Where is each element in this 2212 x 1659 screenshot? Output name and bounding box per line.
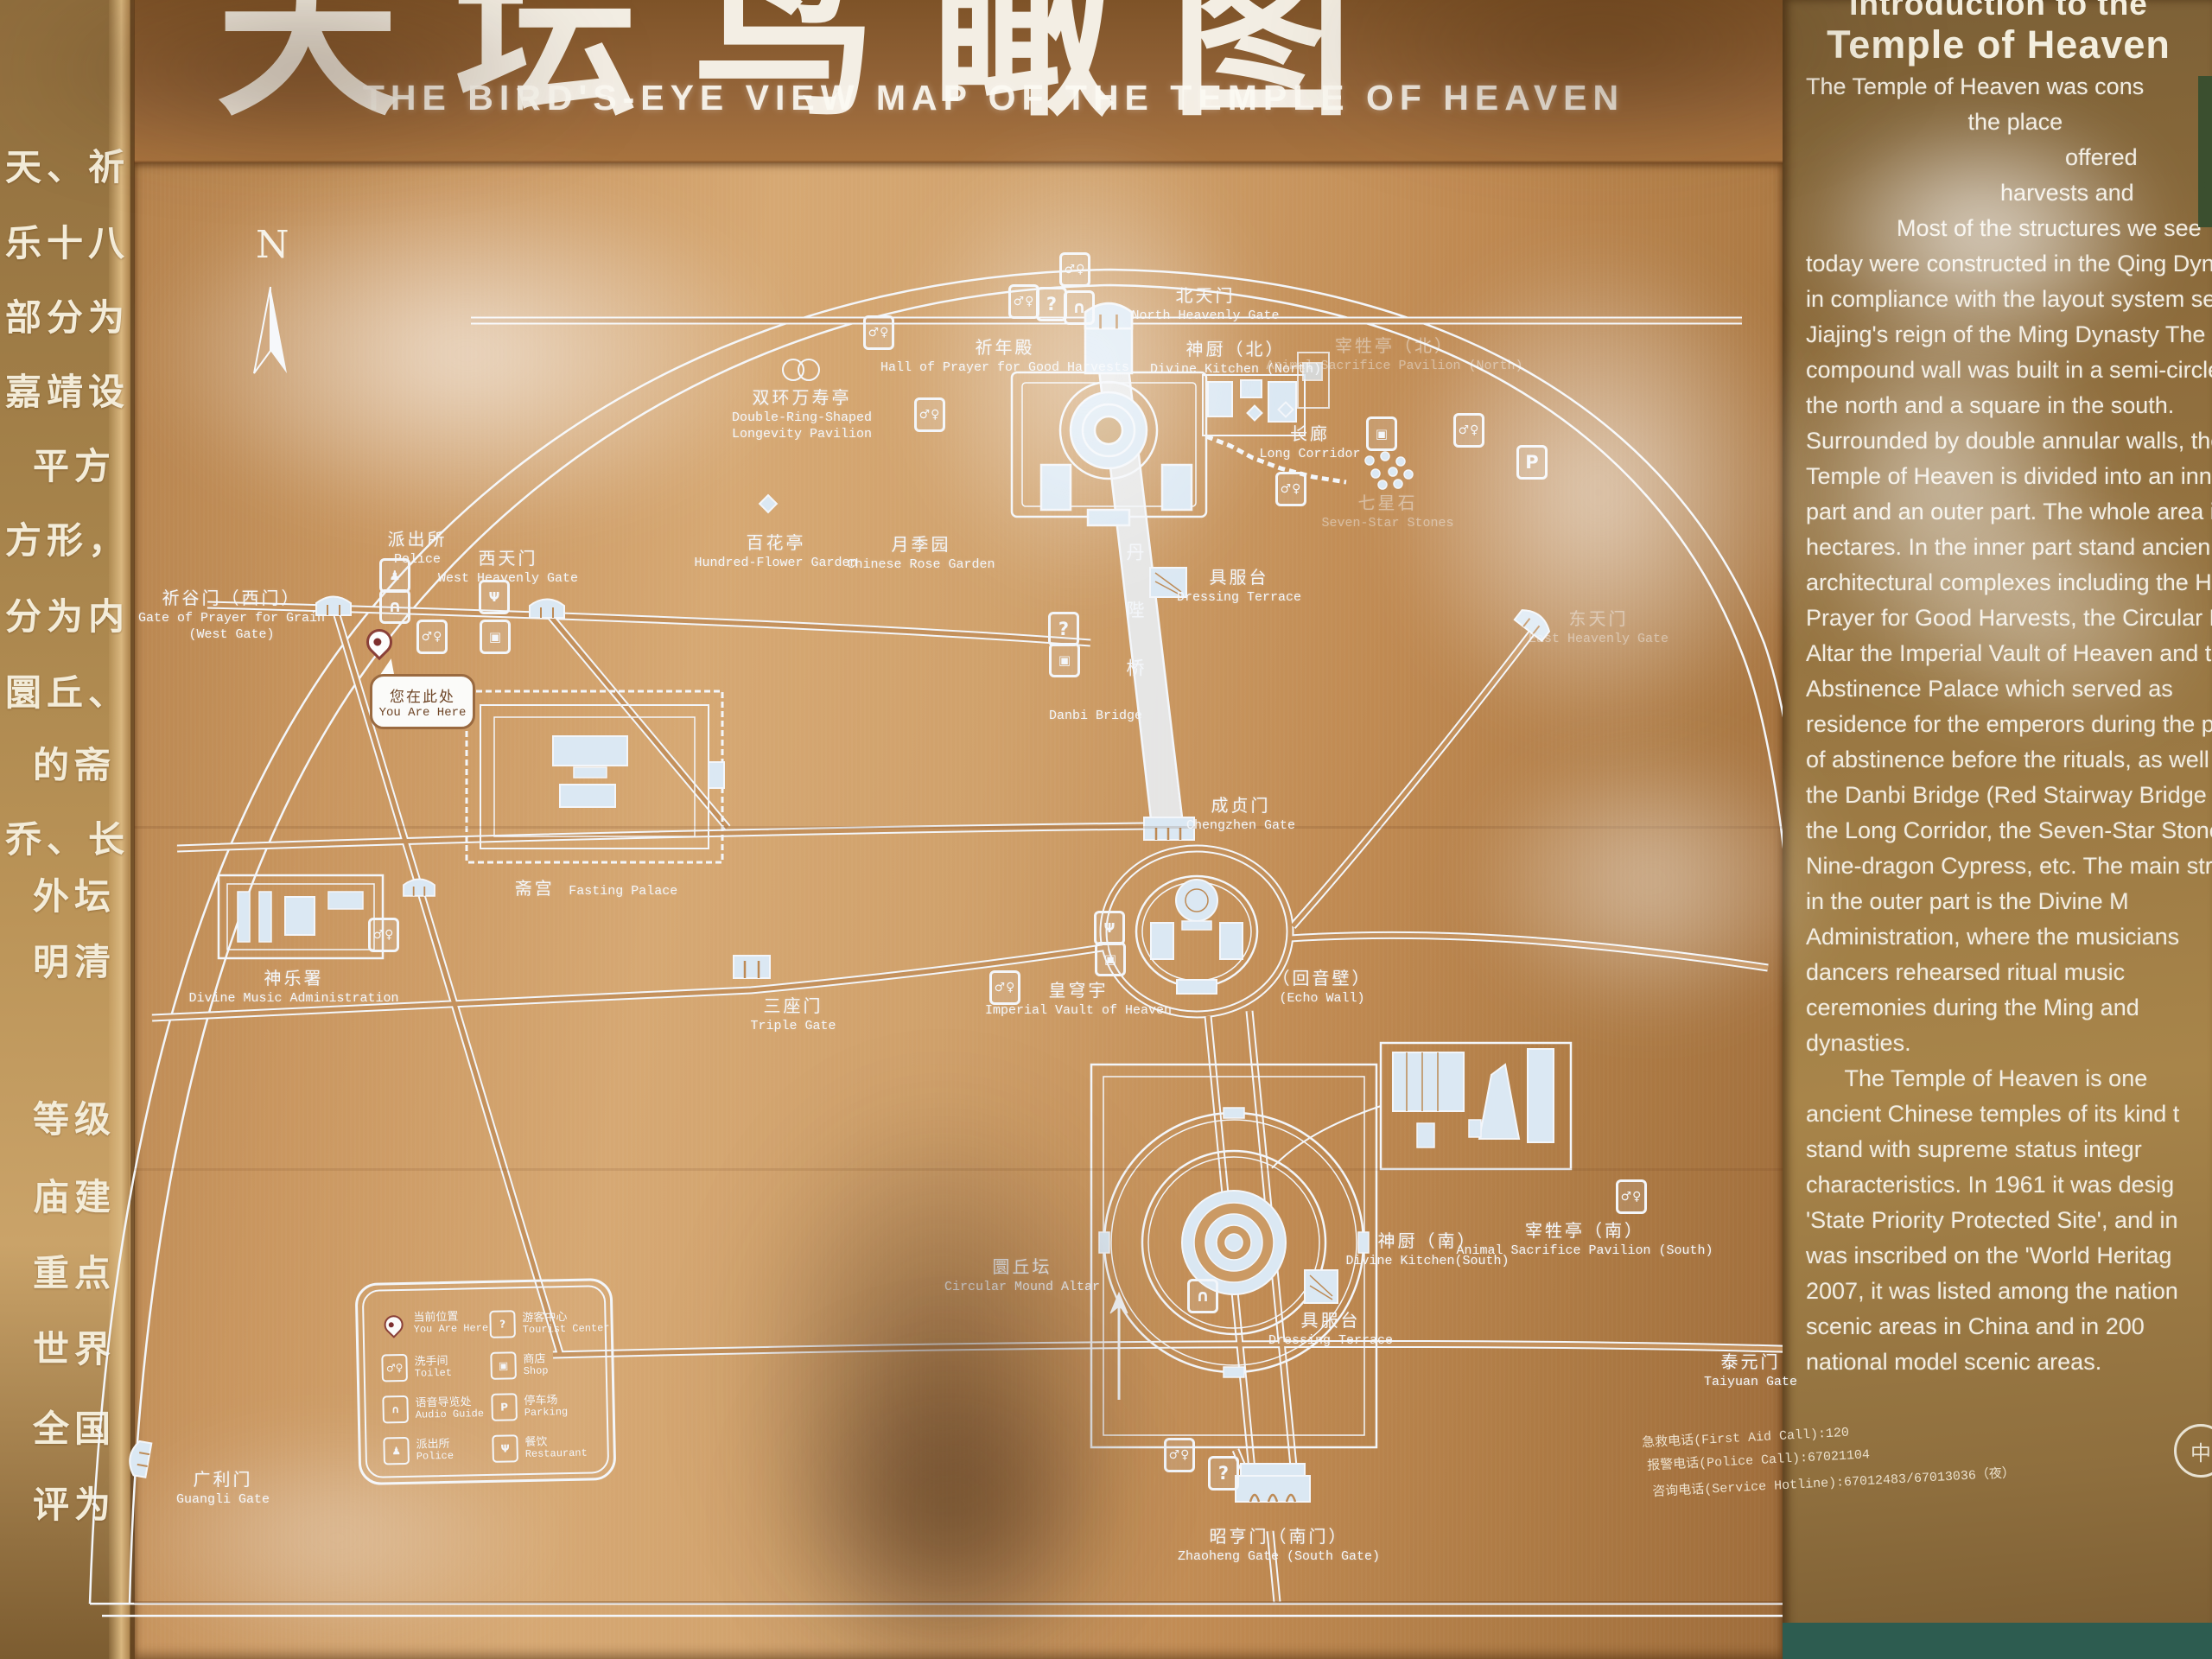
divine-kitchen-south-complex <box>1272 1043 1571 1169</box>
intro-heading-line2: Temple of Heaven <box>1796 22 2202 67</box>
intro-line: scenic areas in China and in 200 <box>1806 1309 2212 1344</box>
compass-arrow <box>254 287 287 373</box>
intro-line: Jiajing's reign of the Ming Dynasty The <box>1806 317 2212 353</box>
intro-line: the Long Corridor, the Seven-Star Stones… <box>1806 813 2212 849</box>
label-east-heavenly-gate: 东天门 East Heavenly Gate <box>1529 605 1669 646</box>
intro-line: the Danbi Bridge (Red Stairway Bridge <box>1806 778 2212 813</box>
intro-line: in compliance with the layout system set… <box>1806 282 2212 317</box>
label-fasting-palace: 斋宫 Fasting Palace <box>510 874 683 899</box>
circular-mound-complex <box>1091 1065 1376 1447</box>
intro-line: 'State Priority Protected Site', and in <box>1806 1203 2212 1238</box>
compass-north-label: N <box>256 223 289 267</box>
legend-item-tourist-center: ? 游客中心 Tourist Center <box>489 1308 609 1338</box>
intro-line: architectural complexes including the Ha… <box>1806 565 2212 601</box>
audio-guide-icon: ∩ <box>379 589 410 624</box>
intro-body: The Temple of Heaven was cons the place … <box>1806 69 2212 1380</box>
you-are-here-bubble: 您在此处 You Are Here <box>370 674 475 729</box>
tourist-center-icon: ? <box>489 1310 516 1338</box>
intro-line: Abstinence Palace which served as <box>1806 671 2212 707</box>
label-chinese-rose-garden: 月季园 Chinese Rose Garden <box>847 531 995 572</box>
intro-line: offered <box>1806 140 2212 175</box>
legend-item-toilet: ♂♀ 洗手间 Toilet <box>381 1353 452 1382</box>
shop-icon: ▣ <box>1366 416 1397 451</box>
label-chengzhen-gate: 成贞门 Chengzhen Gate <box>1186 791 1295 833</box>
toilet-icon: ♂♀ <box>1453 413 1484 448</box>
intro-line: Most of the structures we see <box>1806 211 2212 246</box>
intro-line: of abstinence before the rituals, as wel… <box>1806 742 2212 778</box>
intro-line: dancers rehearsed ritual music <box>1806 955 2212 990</box>
shop-icon: ▣ <box>480 620 511 654</box>
toilet-icon: ♂♀ <box>1164 1438 1195 1472</box>
audio-guide-icon: ∩ <box>1187 1279 1218 1313</box>
toilet-icon: ♂♀ <box>416 620 448 654</box>
intro-line: Temple of Heaven is divided into an inne… <box>1806 459 2212 494</box>
intro-line: 2007, it was listed among the nation <box>1806 1274 2212 1309</box>
police-icon: ♟ <box>383 1437 410 1465</box>
tourist-center-icon: ? <box>1208 1456 1239 1491</box>
intro-line: the north and a square in the south. <box>1806 388 2212 423</box>
label-guangli-gate: 广利门 Guangli Gate <box>176 1465 270 1507</box>
intro-line: harvests and <box>1806 175 2212 211</box>
label-west-heavenly-gate: 西天门 West Heavenly Gate <box>438 544 578 586</box>
intro-line: dynasties. <box>1806 1026 2212 1061</box>
label-animal-sacrifice-north: 宰牲亭（北） Animal Sacrifice Pavilion (North) <box>1266 332 1522 373</box>
label-danbi-bridge-en: Danbi Bridge <box>1049 707 1142 723</box>
intro-line: Nine-dragon Cypress, etc. The main struc <box>1806 849 2212 884</box>
intro-line: ancient Chinese temples of its kind t <box>1806 1096 2212 1132</box>
parking-icon: P <box>1516 445 1548 480</box>
frame-green-sliver <box>2198 76 2212 227</box>
label-long-corridor: 长廊 Long Corridor <box>1259 420 1360 461</box>
intro-line: Administration, where the musicians <box>1806 919 2212 955</box>
intro-line: stand with supreme status integr <box>1806 1132 2212 1167</box>
shop-icon: ▣ <box>490 1351 517 1380</box>
plate-seam <box>134 826 1783 829</box>
label-animal-sacrifice-south: 宰牲亭（南） Animal Sacrifice Pavilion (South) <box>1456 1217 1713 1258</box>
intro-line: Prayer for Good Harvests, the Circular M… <box>1806 601 2212 636</box>
plate-seam <box>134 161 1783 163</box>
restaurant-icon: Ψ <box>492 1434 518 1463</box>
legend-item-audio-guide: ∩ 语音导览处 Audio Guide <box>382 1394 484 1423</box>
shop-icon: ▣ <box>1049 643 1080 677</box>
intro-line: hectares. In the inner part stand ancien <box>1806 530 2212 565</box>
label-divine-music: 神乐署 Divine Music Administration <box>188 964 398 1006</box>
intro-line: part and an outer part. The whole area i… <box>1806 494 2212 530</box>
toilet-icon: ♂♀ <box>1008 284 1039 319</box>
intro-line: national model scenic areas. <box>1806 1344 2212 1380</box>
intro-line: Surrounded by double annular walls, the <box>1806 423 2212 459</box>
label-danbi-bridge-cn: 丹陛桥 <box>1122 543 1147 716</box>
legend-item-parking: P 停车场 Parking <box>491 1392 568 1421</box>
intro-line: The Temple of Heaven is one <box>1806 1061 2212 1096</box>
intro-line: residence for the emperors during the pe… <box>1806 707 2212 742</box>
label-hundred-flower-garden: 百花亭 Hundred-Flower Garden <box>694 529 857 570</box>
legend-item-shop: ▣ 商店 Shop <box>490 1351 548 1379</box>
zhaoheng-gate-shape <box>1236 1464 1310 1502</box>
tourist-center-icon: ? <box>1036 287 1067 321</box>
small-west-gate-shape <box>404 879 435 895</box>
restaurant-icon: Ψ <box>1094 911 1125 945</box>
label-circular-mound: 圜丘坛 Circular Mound Altar <box>944 1253 1100 1294</box>
label-zhaoheng-gate: 昭亨门（南门） Zhaoheng Gate (South Gate) <box>1178 1522 1380 1564</box>
label-taiyuan-gate: 泰元门 Taiyuan Gate <box>1704 1348 1797 1389</box>
sign-photo: 天、祈 乐十八 部分为 嘉靖设 平方 方形， 分为内 圜丘、 的斋 乔、长 外坛… <box>0 0 2212 1659</box>
hundred-flower-pavilion-shape <box>760 495 777 512</box>
divine-music-complex <box>219 875 383 958</box>
toilet-icon: ♂♀ <box>1616 1179 1647 1214</box>
label-seven-star-stones: 七星石 Seven-Star Stones <box>1321 489 1453 531</box>
intro-line: today were constructed in the Qing Dynas… <box>1806 246 2212 282</box>
label-echo-wall: （回音壁） (Echo Wall) <box>1273 964 1372 1006</box>
label-triple-gate: 三座门 Triple Gate <box>750 992 836 1033</box>
label-north-heavenly-gate: 北天门 North Heavenly Gate <box>1131 282 1279 323</box>
intro-line: the place <box>1806 105 2212 140</box>
intro-line: The Temple of Heaven was cons <box>1806 69 2212 105</box>
legend-item-restaurant: Ψ 餐饮 Restaurant <box>492 1433 588 1463</box>
toilet-icon: ♂♀ <box>1275 472 1306 506</box>
legend-box: 当前位置 You Are Here ? 游客中心 Tourist Center … <box>355 1278 617 1485</box>
west-heavenly-gate-shape <box>530 600 564 619</box>
triple-gate-shape <box>734 956 770 978</box>
tourist-center-icon: ? <box>1048 612 1079 646</box>
intro-heading-line1: Introduction to the <box>1796 0 2202 22</box>
toilet-icon: ♂♀ <box>914 397 945 432</box>
intro-line: in the outer part is the Divine M <box>1806 884 2212 919</box>
toilet-icon: ♂♀ <box>1059 252 1090 287</box>
audio-guide-icon: ∩ <box>382 1395 409 1424</box>
parking-icon: P <box>491 1393 518 1421</box>
label-dressing-terrace-north: 具服台 Dressing Terrace <box>1177 563 1301 605</box>
label-dressing-terrace-south: 具服台 Dressing Terrace <box>1268 1306 1393 1348</box>
intro-line: compound wall was built in a semi-circle… <box>1806 353 2212 388</box>
label-gate-of-prayer-for-grain: 祈谷门（西门） Gate of Prayer for Grain (West G… <box>138 584 325 642</box>
intro-line: was inscribed on the 'World Heritag <box>1806 1238 2212 1274</box>
label-hall-of-prayer: 祈年殿 Hall of Prayer for Good Harvests <box>880 334 1129 375</box>
toilet-icon: ♂♀ <box>381 1354 408 1382</box>
intro-line: Altar the Imperial Vault of Heaven and t… <box>1806 636 2212 671</box>
legend-item-police: ♟ 派出所 Police <box>383 1436 454 1465</box>
label-double-ring-pavilion: 双环万寿亭 Double-Ring-Shaped Longevity Pavil… <box>732 384 872 442</box>
plate-seam <box>134 1601 1783 1604</box>
double-ring-pavilion-shape <box>783 359 819 380</box>
audio-guide-icon: ∩ <box>1064 290 1095 325</box>
intro-line: characteristics. In 1961 it was desig <box>1806 1167 2212 1203</box>
dressing-terrace-south-shape <box>1305 1270 1338 1303</box>
pin-icon <box>380 1311 407 1338</box>
plate-seam <box>134 1168 1783 1171</box>
shop-icon: ▣ <box>1095 942 1126 976</box>
label-imperial-vault: 皇穹宇 Imperial Vault of Heaven <box>985 976 1172 1018</box>
toilet-icon: ♂♀ <box>368 918 399 952</box>
legend-item-you-are-here: 当前位置 You Are Here <box>380 1311 488 1337</box>
seven-star-stones-dots <box>1365 452 1413 489</box>
frame-teal-strip <box>1783 1623 2212 1659</box>
guangli-gate-shape <box>127 1440 151 1478</box>
intro-heading: Introduction to the Temple of Heaven <box>1796 0 2202 67</box>
intro-line: ceremonies during the Ming and <box>1806 990 2212 1026</box>
